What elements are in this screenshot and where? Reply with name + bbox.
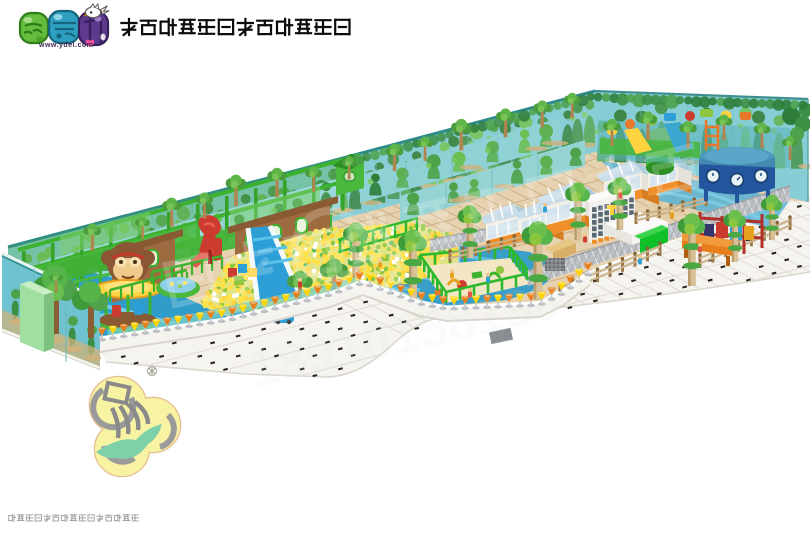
svg-text:www.ydel.com: www.ydel.com: [38, 42, 93, 49]
